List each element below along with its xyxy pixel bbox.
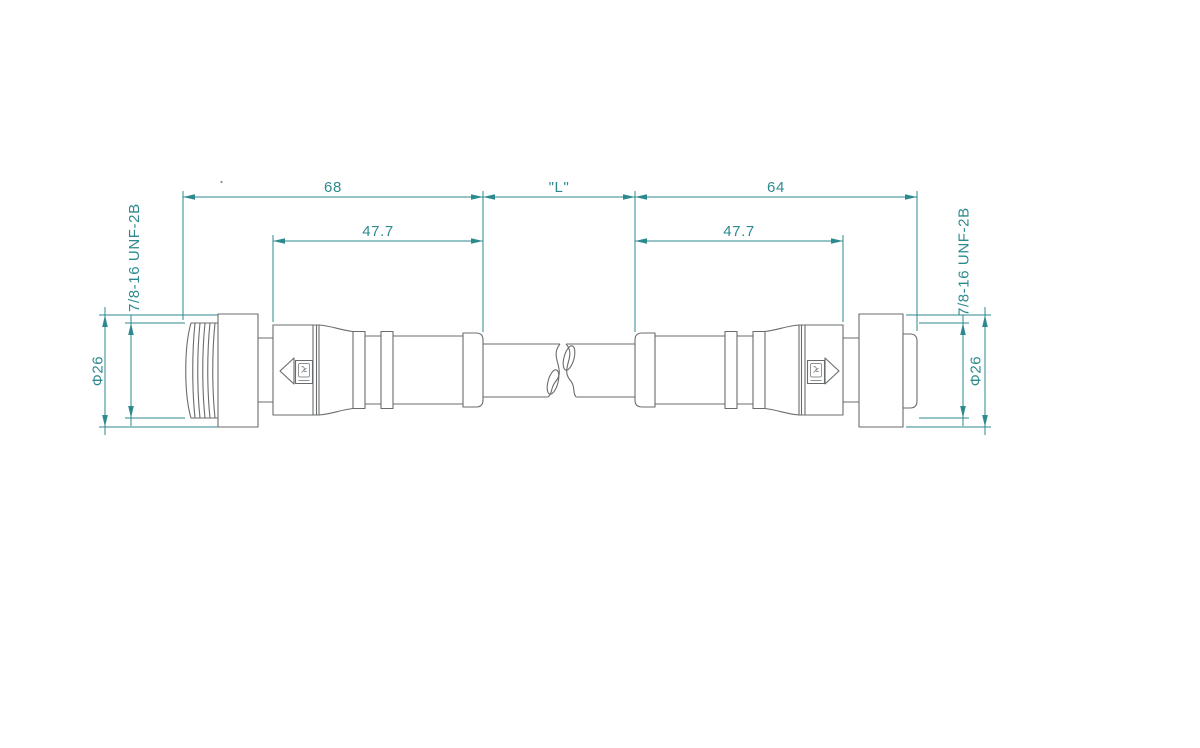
arrowhead — [960, 406, 966, 418]
right-neck — [843, 338, 859, 402]
dim-label-left-thread: 7/8-16 UNF-2B — [126, 203, 143, 312]
left-rib-gap — [365, 336, 381, 404]
dim-label-right-thread: 7/8-16 UNF-2B — [956, 207, 973, 316]
ext-lines-right-thread — [919, 323, 969, 418]
ext-lines-second — [273, 235, 843, 322]
arrowhead — [982, 315, 988, 327]
left-thread-outline — [186, 323, 218, 418]
left-end-cap — [463, 333, 483, 407]
dim-label-overall-right: 64 — [767, 179, 785, 196]
right-coupling-nut-knurl — [859, 314, 903, 427]
dimension-right-thread: 7/8-16 UNF-2B — [919, 207, 973, 426]
dim-label-body-left: 47.7 — [362, 223, 394, 240]
arrowhead — [128, 406, 134, 418]
ext-lines-top — [183, 191, 917, 332]
arrowhead — [960, 323, 966, 335]
arrowhead — [905, 194, 917, 200]
arrowhead — [483, 194, 495, 200]
left-neck — [258, 338, 273, 402]
right-rear-cap — [903, 334, 917, 408]
arrowhead — [128, 323, 134, 335]
arrowhead — [102, 315, 108, 327]
dimension-right-diameter: Φ26 — [906, 307, 991, 435]
right-rib-2 — [753, 332, 765, 409]
cable-assembly-technical-drawing: 68 "L" 64 47.7 47.7 Φ26 7/8-16 UNF-2B — [0, 0, 1200, 748]
left-strain-relief-cylinder — [393, 336, 463, 404]
right-logo-frame — [808, 361, 825, 384]
right-connector — [635, 314, 917, 427]
left-rib-2 — [381, 332, 393, 409]
arrowhead — [471, 194, 483, 200]
arrowhead — [183, 194, 195, 200]
dimension-row-second: 47.7 47.7 — [273, 223, 843, 322]
dim-label-overall-left: 68 — [324, 179, 342, 196]
dim-label-left-diameter: Φ26 — [90, 356, 107, 386]
cable-right-segment — [566, 344, 635, 397]
arrowhead — [273, 238, 285, 244]
sheet-dot — [220, 181, 222, 183]
cable — [483, 344, 635, 397]
cable-break-left-hatch — [545, 369, 561, 396]
arrowhead — [471, 238, 483, 244]
right-strain-relief-cylinder — [655, 336, 725, 404]
right-rib-gap — [737, 336, 753, 404]
dim-label-right-diameter: Φ26 — [968, 356, 985, 386]
left-coupling-nut-knurl — [218, 314, 258, 427]
right-taper — [765, 325, 799, 415]
left-logo-frame — [296, 361, 313, 384]
cable-left-segment — [483, 344, 560, 397]
arrowhead — [831, 238, 843, 244]
left-taper — [319, 325, 353, 415]
drawing-sheet: 68 "L" 64 47.7 47.7 Φ26 7/8-16 UNF-2B — [0, 0, 1200, 748]
arrowhead — [635, 238, 647, 244]
right-end-cap — [635, 333, 655, 407]
left-rib-1 — [353, 332, 365, 409]
arrowhead — [635, 194, 647, 200]
right-rib-1 — [725, 332, 737, 409]
dimension-row-top: 68 "L" 64 — [183, 179, 917, 332]
dim-label-body-right: 47.7 — [723, 223, 755, 240]
right-logo-icon — [808, 361, 825, 384]
arrowhead — [982, 415, 988, 427]
left-logo-icon — [296, 361, 313, 384]
arrowhead — [623, 194, 635, 200]
arrowhead — [102, 415, 108, 427]
left-connector — [186, 314, 483, 427]
ext-lines-left-thread — [125, 323, 185, 418]
dim-label-cable-length: "L" — [549, 179, 570, 196]
